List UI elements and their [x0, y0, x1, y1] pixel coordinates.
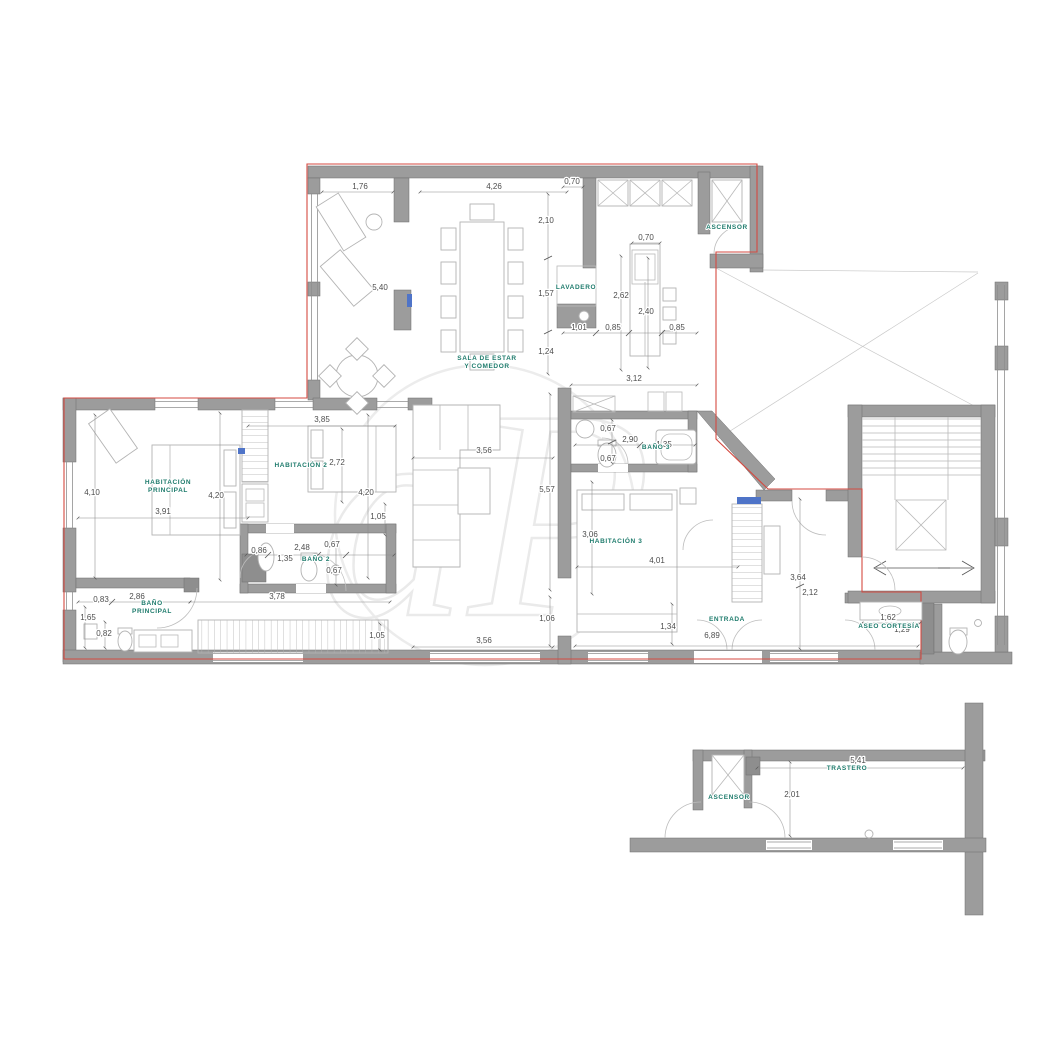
- room-label-bano-3: BAÑO 3: [642, 442, 670, 451]
- dim-label-36: 3,78: [269, 592, 285, 601]
- dim-label-6: 1,57: [538, 289, 554, 298]
- bed-principal: [89, 409, 240, 535]
- dim-label-21: 3,56: [476, 446, 492, 455]
- dim-label-37: 1,65: [80, 613, 96, 622]
- dim-label-30: 2,48: [294, 543, 310, 552]
- dim-label-20: 1,05: [370, 512, 386, 521]
- floor-plan-page: aP: [0, 0, 1053, 1052]
- window-marker-blue: [407, 294, 412, 307]
- dim-label-28: 4,01: [649, 556, 665, 565]
- elevator-top: [712, 180, 742, 254]
- dim-label-4: 0,70: [638, 233, 654, 242]
- dim-label-18: 4,20: [358, 488, 374, 497]
- dim-label-33: 0,67: [326, 566, 342, 575]
- dim-label-0: 1,76: [352, 182, 368, 191]
- dim-label-5: 5,40: [372, 283, 388, 292]
- room-label-trastero: TRASTERO: [827, 765, 868, 772]
- room-label-bano-2: BAÑO 2: [302, 554, 330, 563]
- dim-label-44: 3,64: [790, 573, 806, 582]
- dim-label-23: 0,67: [600, 424, 616, 433]
- dim-label-10: 1,01: [571, 323, 587, 332]
- terrace-lounge: [316, 193, 395, 414]
- closet-marker-blue: [238, 448, 245, 454]
- dim-label-40: 1,06: [539, 614, 555, 623]
- room-label-sala-de-estar: SALA DE ESTARY COMEDOR: [457, 355, 516, 370]
- dim-label-39: 1,05: [369, 631, 385, 640]
- radiator-marker-blue: [737, 497, 761, 504]
- dining-table-set: [441, 204, 523, 370]
- room-label-lavadero: LAVADERO: [556, 284, 596, 291]
- wardrobe-bedrooms: [242, 410, 268, 522]
- room-label-ascensor-top: ASCENSOR: [706, 224, 748, 231]
- floor-plan-canvas: aP: [0, 0, 1053, 1052]
- dim-label-1: 4,26: [486, 182, 502, 191]
- staircase: [862, 417, 981, 575]
- stair-direction-arrows: [874, 561, 974, 575]
- dim-label-2: 0,70: [564, 177, 580, 186]
- dim-label-16: 4,10: [84, 488, 100, 497]
- dim-label-38: 0,82: [96, 629, 112, 638]
- room-label-aseo-cortesia: ASEO CORTESÍA: [858, 621, 920, 630]
- dim-label-17: 4,20: [208, 491, 224, 500]
- dim-label-29: 0,86: [251, 546, 267, 555]
- dim-label-42: 1,34: [660, 622, 676, 631]
- dim-label-13: 3,12: [626, 374, 642, 383]
- dim-label-14: 3,85: [314, 415, 330, 424]
- dim-label-48: 5,41: [850, 756, 866, 765]
- room-label-ascensor-bottom: ASCENSOR: [708, 794, 750, 801]
- room-label-habitacion-principal: HABITACIÓNPRINCIPAL: [145, 477, 191, 494]
- bed-habitacion-3: [577, 488, 696, 632]
- dim-label-24: 2,90: [622, 435, 638, 444]
- room-label-habitacion-3: HABITACIÓN 3: [590, 536, 643, 545]
- dim-label-8: 2,40: [638, 307, 654, 316]
- dim-label-34: 0,83: [93, 595, 109, 604]
- room-label-entrada: ENTRADA: [709, 616, 745, 623]
- dim-label-26: 0,67: [600, 454, 616, 463]
- dim-label-15: 2,72: [329, 458, 345, 467]
- dim-label-9: 1,24: [538, 347, 554, 356]
- dim-label-7: 2,62: [613, 291, 629, 300]
- dim-label-43: 6,89: [704, 631, 720, 640]
- dim-label-31: 0,67: [324, 540, 340, 549]
- dim-label-41: 3,56: [476, 636, 492, 645]
- dim-label-22: 5,57: [539, 485, 555, 494]
- bed-habitacion-2: [308, 426, 396, 492]
- wardrobe-hall: [198, 620, 388, 653]
- dim-label-12: 0,85: [669, 323, 685, 332]
- wardrobe-entrada: [732, 504, 780, 602]
- dim-label-49: 2,01: [784, 790, 800, 799]
- dim-label-11: 0,85: [605, 323, 621, 332]
- dim-label-45: 2,12: [802, 588, 818, 597]
- room-label-habitacion-2: HABITACIÓN 2: [275, 460, 328, 469]
- dim-label-3: 2,10: [538, 216, 554, 225]
- dim-label-32: 1,35: [277, 554, 293, 563]
- dim-label-46: 1,62: [880, 613, 896, 622]
- dim-label-19: 3,91: [155, 507, 171, 516]
